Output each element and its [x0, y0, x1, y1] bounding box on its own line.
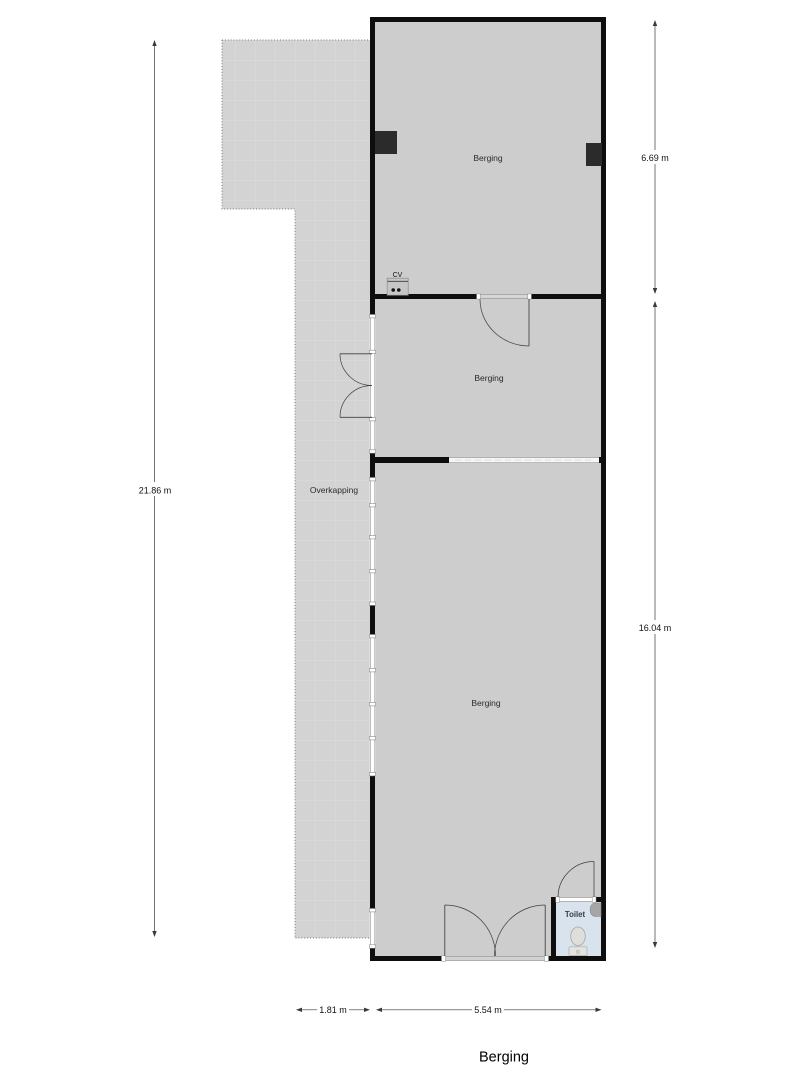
svg-text:CV: CV — [393, 272, 403, 279]
svg-text:1.81 m: 1.81 m — [319, 1005, 347, 1015]
svg-text:Berging: Berging — [479, 1050, 529, 1066]
svg-text:Toilet: Toilet — [565, 910, 586, 919]
svg-text:Berging: Berging — [473, 153, 503, 163]
svg-text:16.04 m: 16.04 m — [639, 623, 672, 633]
svg-text:6.69 m: 6.69 m — [641, 153, 669, 163]
svg-text:Overkapping: Overkapping — [310, 485, 358, 495]
svg-text:Berging: Berging — [471, 698, 501, 708]
svg-text:21.86 m: 21.86 m — [139, 486, 172, 496]
svg-text:5.54 m: 5.54 m — [474, 1005, 502, 1015]
svg-text:Berging: Berging — [474, 373, 504, 383]
